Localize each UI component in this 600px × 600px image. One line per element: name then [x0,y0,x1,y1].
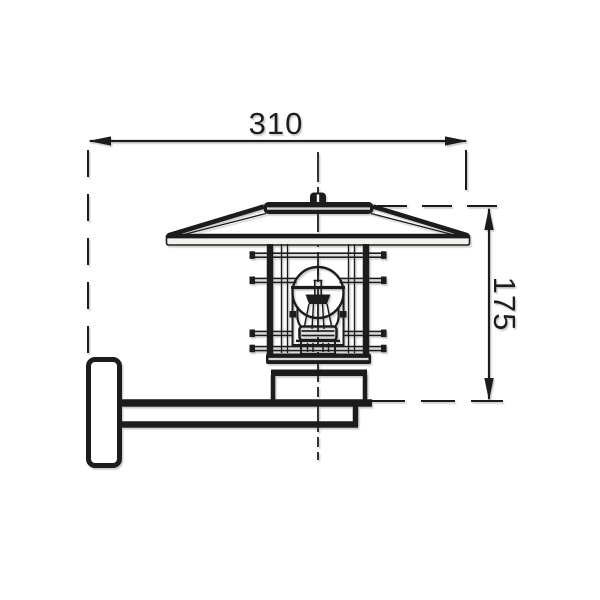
glass-clip-left [290,311,297,318]
canopy-slope-left [168,207,264,236]
filament-mount [306,295,331,305]
drawing-svg: 310 175 [0,0,600,600]
canopy-slope-right [373,207,468,236]
arrowhead-right-icon [445,136,468,145]
glass-clip-right [340,311,347,318]
drawing-root: 310 175 [88,106,522,466]
technical-drawing-canvas: 310 175 [0,0,600,600]
arrowhead-up-icon [484,207,493,230]
arrowhead-down-icon [484,378,493,401]
dimension-height-label: 175 [487,277,522,332]
arrowhead-left-icon [88,136,111,145]
wall-mount-plate [89,360,120,466]
body-band [271,370,367,377]
bracket-arm [121,403,372,426]
dimension-width-label: 310 [249,106,304,141]
dimension-width: 310 [88,106,468,357]
